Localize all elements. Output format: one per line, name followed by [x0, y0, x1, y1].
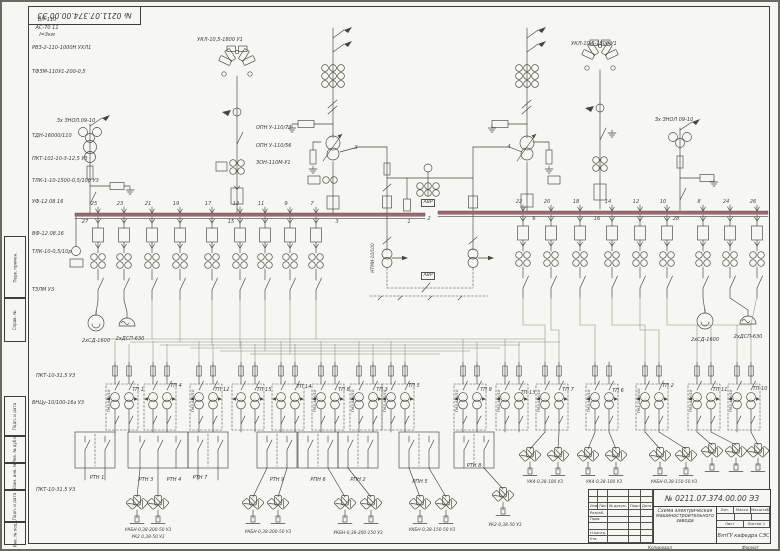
feeder-number: 18 — [573, 200, 580, 205]
equipment-label: ПКТ-10-31,5 У3 — [36, 374, 75, 379]
revision-cell: Н.контр. — [589, 530, 608, 537]
revision-cell — [589, 523, 608, 530]
tp-label: ТП 12 — [215, 388, 230, 393]
equipment-label: ВЛ-110 — [38, 18, 57, 23]
tp-label: ТП 7 — [562, 388, 574, 393]
feeder-number: 26 — [750, 200, 757, 205]
format-label: Формат — [742, 546, 759, 550]
capacitor-label: УК2 0,38-50 У3 — [131, 536, 164, 540]
equipment-label: l=3км — [39, 33, 55, 38]
feeder-number: 13 — [233, 202, 240, 207]
transformer-label: ТМЗ-400/10 — [313, 390, 317, 413]
revision-header-cell: Дата — [641, 503, 653, 510]
equipment-label: ТЗЛМ У3 — [32, 288, 54, 293]
rtn-label: РПН 2 — [350, 478, 365, 483]
equipment-label: АС-70 11 — [35, 26, 58, 31]
capacitor-label: УКБН-0,38-200-50 У3 — [245, 531, 291, 535]
tp-label: ТП 2 — [662, 384, 674, 389]
tp-label: ТП 9 — [480, 388, 492, 393]
feeder-number: 10 — [660, 200, 667, 205]
revision-header-cell: № докум. — [608, 503, 629, 510]
rtn-label: РПН 5 — [412, 480, 427, 485]
transformer-label: ТМЗ-1000/10 — [637, 388, 641, 413]
revision-cell — [608, 497, 629, 504]
capacitor-label: УК4-0,38-100 У3 — [527, 481, 563, 485]
transformer-label: ТМЗ-400/10 — [497, 390, 501, 413]
rtn-label: РТН 9 — [270, 478, 285, 483]
sheet-label: Лист — [717, 521, 744, 528]
feeder-number: 7 — [310, 202, 313, 207]
revision-cell — [629, 530, 641, 537]
section-number: 1 — [407, 220, 410, 225]
revision-cell — [629, 510, 641, 517]
avr-box: АВР — [421, 272, 435, 280]
revision-cell: Утв. — [589, 536, 608, 543]
equipment-label: УФ-12.08.16 — [32, 200, 63, 205]
equipment-label: ВФ-12.08.16 — [32, 232, 64, 237]
tp-label: ТП 13 — [521, 391, 536, 396]
capacitor-label: УКБН-0,38-200-50 У3 — [125, 529, 171, 533]
feeder-number: 17 — [205, 202, 212, 207]
revision-cell — [641, 530, 653, 537]
tp-label: ТП 5 — [408, 384, 420, 389]
mass-label: Масса — [734, 507, 751, 514]
tp-label: ТП 6 — [612, 389, 624, 394]
capacitor-label: УК2-0,38-50 У3 — [488, 524, 521, 528]
feeder-number: 21 — [145, 202, 152, 207]
sheets-label: Листов 1 — [744, 521, 771, 528]
rtn-label: РТН 3 — [139, 478, 154, 483]
feeder-number: 6 — [532, 217, 535, 222]
rtn-label: РТН 7 — [193, 476, 208, 481]
equipment-label: УКЛ-10,5-1800 У1 — [197, 38, 243, 43]
revision-cell — [608, 510, 629, 517]
revision-header-cell: Подп. — [629, 503, 641, 510]
revision-cell — [629, 490, 641, 497]
equipment-label: ПКТ-10-31,5 У3 — [36, 488, 75, 493]
revision-cell — [641, 497, 653, 504]
equipment-label: 2хДСП-630 — [116, 337, 145, 342]
tp-label: ТП 14 — [297, 385, 312, 390]
tp-label: ТП 1 — [132, 388, 144, 393]
feeder-number: 27 — [82, 220, 89, 225]
feeder-number: 12 — [633, 200, 640, 205]
equipment-label: ТЛК-10-0,5/10р — [32, 250, 72, 255]
equipment-label: 2хДСП-630 — [734, 335, 763, 340]
transformer-label: ТМЗ-630/10 — [107, 390, 111, 413]
avr-box: АВР — [421, 199, 435, 207]
transformer-label: ТМЗ-630/10 — [689, 390, 693, 413]
rtn-label: РПН 6 — [310, 478, 325, 483]
transformer-label: ТМЗ-400/10 — [383, 390, 387, 413]
tp-label: ТП 10 — [753, 387, 768, 392]
label-layer: ВЛ-110АС-70 11l=3кмРВЗ-2-110-1000Н УХЛ1Т… — [0, 0, 780, 551]
revision-cell — [629, 536, 641, 543]
revision-cell — [598, 490, 608, 497]
organization: ВятГУ кафедра СЭС — [717, 528, 770, 543]
revision-cell — [608, 523, 629, 530]
equipment-label: ОПН У-110/73 — [256, 126, 292, 131]
revision-header-cell: Изм. — [589, 503, 598, 510]
feeder-number: 25 — [91, 202, 98, 207]
revision-cell — [589, 497, 598, 504]
transformer-label: ТМЗ-400/10 — [729, 390, 733, 413]
capacitor-label: УКБН-0,38-200-150 У3 — [333, 532, 382, 536]
feeder-number: 22 — [516, 200, 523, 205]
transformer-label: ТМЗ-630/10 — [455, 390, 459, 413]
line-number: 4 — [507, 145, 510, 150]
revision-cell — [629, 523, 641, 530]
capacitor-label: УКБН-0,38-150-50 У3 — [651, 481, 697, 485]
feeder-number: 16 — [594, 217, 601, 222]
feeder-number: 14 — [605, 200, 612, 205]
document-number: № 0211.07.374.00.00 ЭЗ — [654, 490, 770, 507]
revision-cell — [608, 517, 629, 524]
revision-cell — [608, 536, 629, 543]
feeder-number: 23 — [117, 202, 124, 207]
revision-cell — [641, 510, 653, 517]
feeder-number: 9 — [284, 202, 287, 207]
equipment-label: ОПН У-110/56 — [256, 144, 292, 149]
capacitor-label: УК4-0,38-100 У3 — [586, 481, 622, 485]
equipment-label: ТФЗМ-110У1-200-0,5 — [32, 70, 86, 75]
transformer-label: ТМЗ-630/10 — [191, 390, 195, 413]
transformer-label: ТМЗ-400/10 — [587, 390, 591, 413]
tp-label: ТП 11 — [713, 388, 728, 393]
lit-label: Лит. — [717, 507, 734, 514]
rtn-label: РТН 1 — [90, 476, 105, 481]
tp-label: ТП 8 — [338, 388, 350, 393]
tp-label: ТП 4 — [170, 384, 182, 389]
title-block-revision-table: Изм.Лист№ докум.Подп.ДатаРазраб.Пров.Н.к… — [589, 490, 654, 543]
tp-label: ТП 15 — [257, 388, 272, 393]
equipment-label: ПКТ-101-10-3-12,5 У3 — [32, 157, 88, 162]
equipment-label: Зх ЗНОЛ.09-10 — [57, 119, 96, 124]
drawing-title: Схема электрическая машиностроительного … — [654, 507, 717, 543]
equipment-label: Зх ЗНОЛ 09-10 — [655, 118, 694, 123]
feeder-number: 28 — [673, 217, 680, 222]
transformer-label: ТМЗ-630/10 — [351, 390, 355, 413]
revision-cell — [641, 490, 653, 497]
equipment-label: РВЗ-2-110-1000Н УХЛ1 — [32, 46, 91, 51]
transformer-label: ТМЗ-630/10 — [537, 390, 541, 413]
revision-cell — [608, 490, 629, 497]
line-number: 3 — [354, 146, 357, 151]
revision-cell — [641, 536, 653, 543]
revision-header-cell: Лист — [598, 503, 608, 510]
equipment-label: НТМИ-10/100 — [372, 243, 376, 272]
rtn-label: РТН 8 — [467, 464, 482, 469]
feeder-number: 3 — [335, 220, 338, 225]
revision-cell — [589, 490, 598, 497]
equipment-label: ВНЦу-10/100-16з У3 — [32, 401, 84, 406]
rtn-label: РТН 4 — [167, 478, 182, 483]
equipment-label: 2хСД-1600 — [82, 339, 110, 344]
revision-cell — [629, 517, 641, 524]
revision-cell — [629, 497, 641, 504]
revision-cell — [608, 530, 629, 537]
feeder-number: 20 — [544, 200, 551, 205]
revision-cell: Разраб. — [589, 510, 608, 517]
feeder-number: 11 — [258, 202, 265, 207]
equipment-label: 2хСД-1600 — [691, 338, 719, 343]
feeder-number: 8 — [697, 200, 700, 205]
equipment-label: УКЛ-10,5-1800 У1 — [571, 42, 617, 47]
drawing-sheet: № 0211.07.374.00.00 ЭЗ Перв. примен.Спра… — [0, 0, 780, 551]
feeder-number: 19 — [173, 202, 180, 207]
revision-cell — [598, 497, 608, 504]
title-block: Изм.Лист№ докум.Подп.ДатаРазраб.Пров.Н.к… — [588, 489, 771, 544]
feeder-number: 15 — [228, 220, 235, 225]
revision-cell — [641, 523, 653, 530]
revision-cell — [641, 517, 653, 524]
equipment-label: ТДН-16000/110 — [32, 134, 72, 139]
scale-label: Масштаб — [751, 507, 770, 514]
kopiroval-label: Копировал — [648, 546, 672, 550]
section-number: 2 — [427, 217, 430, 222]
feeder-number: 24 — [723, 200, 730, 205]
equipment-label: ТЛК-1-10-1500-0,5/10р У3 — [32, 179, 99, 184]
revision-cell: Пров. — [589, 517, 608, 524]
capacitor-label: УКБН-0,38-150-50 У3 — [409, 529, 455, 533]
equipment-label: ЗОН-110М-У1 — [256, 161, 291, 166]
